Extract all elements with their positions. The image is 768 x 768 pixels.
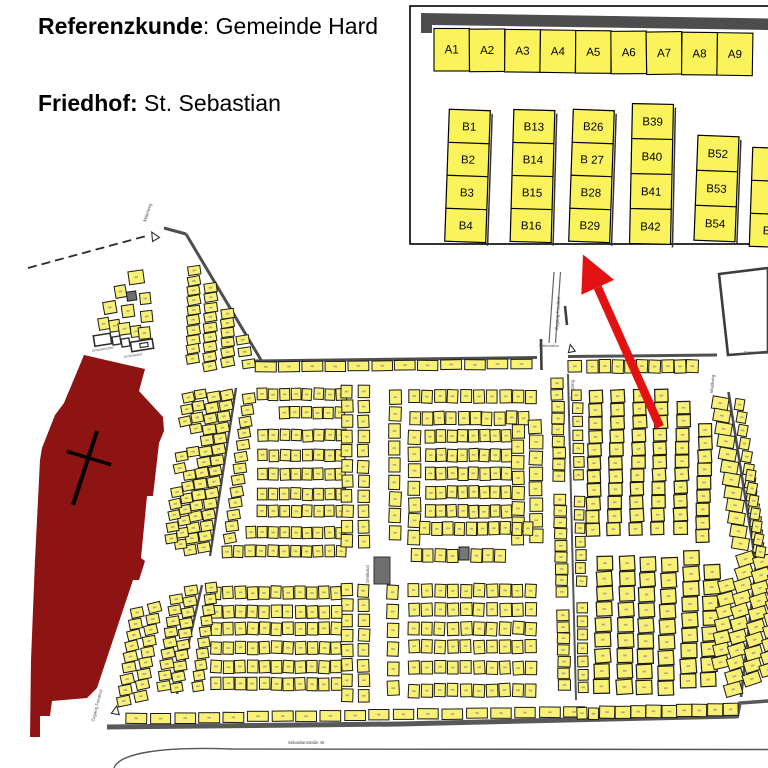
svg-text:Mittelstation: Mittelstation — [539, 344, 559, 348]
svg-text:B2: B2 — [461, 154, 475, 166]
svg-text:Sebastianstraße 49: Sebastianstraße 49 — [288, 740, 325, 745]
svg-text:A7: A7 — [657, 48, 671, 60]
svg-text:B4: B4 — [458, 220, 473, 233]
svg-text:B28: B28 — [580, 187, 601, 200]
svg-text:B53: B53 — [706, 183, 727, 196]
svg-text:A2: A2 — [480, 45, 494, 57]
svg-text:A3: A3 — [515, 46, 529, 58]
svg-text:B 27: B 27 — [580, 154, 604, 167]
svg-text:A5: A5 — [586, 47, 600, 59]
svg-text:A4: A4 — [551, 46, 566, 58]
svg-text:B54: B54 — [705, 218, 727, 231]
svg-text:A6: A6 — [622, 47, 636, 59]
svg-text:B16: B16 — [521, 220, 542, 233]
svg-text:A9: A9 — [728, 49, 742, 61]
svg-text:B1: B1 — [462, 121, 476, 133]
svg-text:Denkmal: Denkmal — [365, 565, 370, 583]
svg-text:B14: B14 — [523, 154, 544, 167]
svg-text:B26: B26 — [583, 121, 604, 134]
svg-text:B40: B40 — [641, 151, 662, 163]
svg-text:B42: B42 — [640, 221, 661, 233]
svg-text:Friedhof: St. Sebastian: Friedhof: St. Sebastian — [38, 90, 281, 116]
svg-text:Referenzkunde: Gemeinde Hard: Referenzkunde: Gemeinde Hard — [38, 13, 378, 39]
svg-text:B15: B15 — [522, 187, 543, 200]
svg-text:B39: B39 — [642, 116, 663, 128]
svg-text:B6: B6 — [763, 225, 768, 237]
svg-text:A8: A8 — [692, 48, 706, 60]
svg-text:B3: B3 — [460, 187, 474, 199]
svg-text:B41: B41 — [641, 186, 662, 198]
svg-text:A1: A1 — [445, 45, 459, 57]
svg-text:B29: B29 — [579, 220, 600, 233]
svg-text:Gemeindeamt: Gemeindeamt — [744, 350, 768, 355]
svg-text:B52: B52 — [707, 148, 728, 161]
svg-text:B13: B13 — [523, 121, 544, 134]
